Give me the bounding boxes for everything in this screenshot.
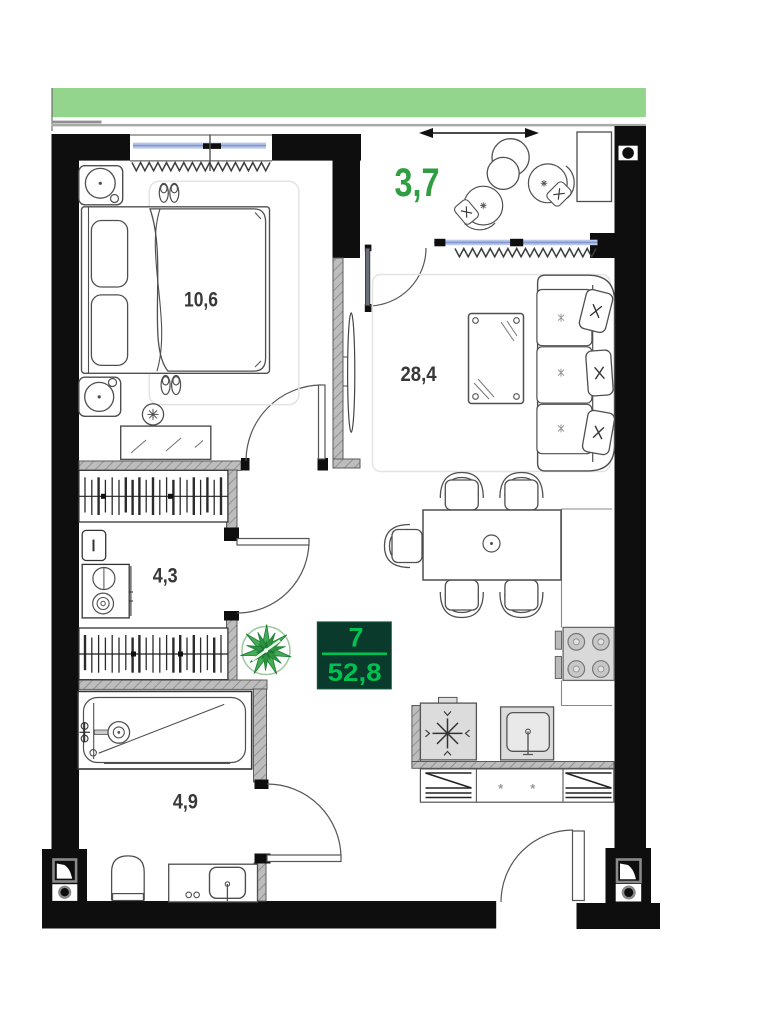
- svg-text:28,4: 28,4: [401, 362, 437, 386]
- svg-text:10,6: 10,6: [184, 288, 218, 312]
- svg-text:4,9: 4,9: [173, 790, 198, 814]
- svg-text:4,3: 4,3: [153, 564, 178, 588]
- svg-text:3,7: 3,7: [395, 161, 440, 205]
- svg-text:52,8: 52,8: [328, 659, 382, 687]
- svg-text:7: 7: [348, 622, 363, 652]
